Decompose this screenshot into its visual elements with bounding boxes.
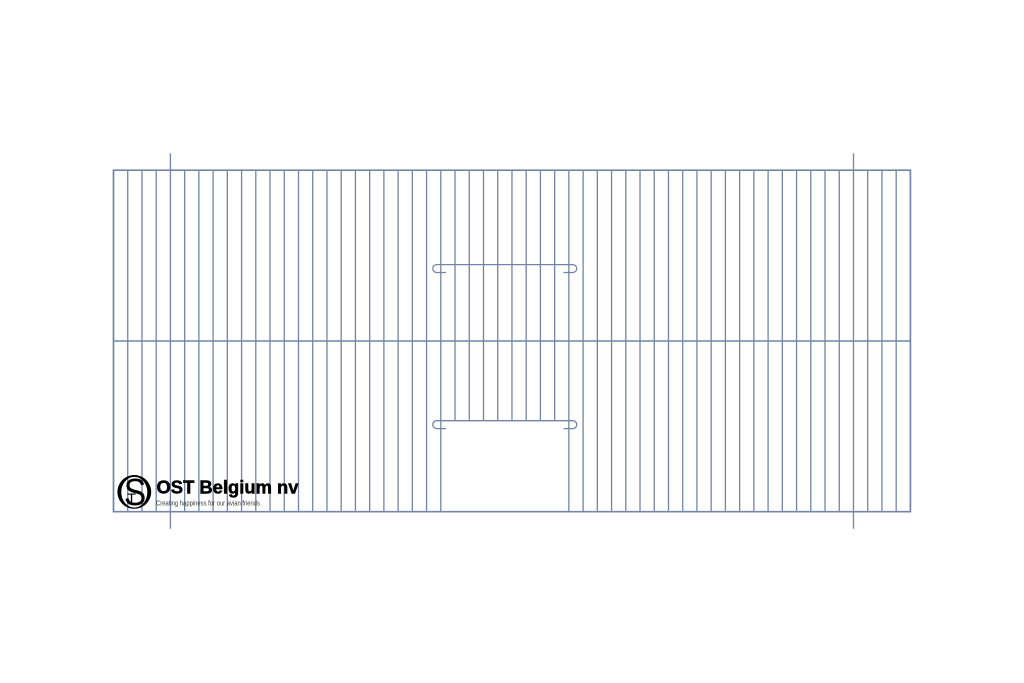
- svg-text:T: T: [127, 491, 136, 507]
- svg-text:OST Belgium nv: OST Belgium nv: [157, 476, 300, 497]
- svg-text:Creating happiness for our avi: Creating happiness for our avian friends: [156, 500, 260, 507]
